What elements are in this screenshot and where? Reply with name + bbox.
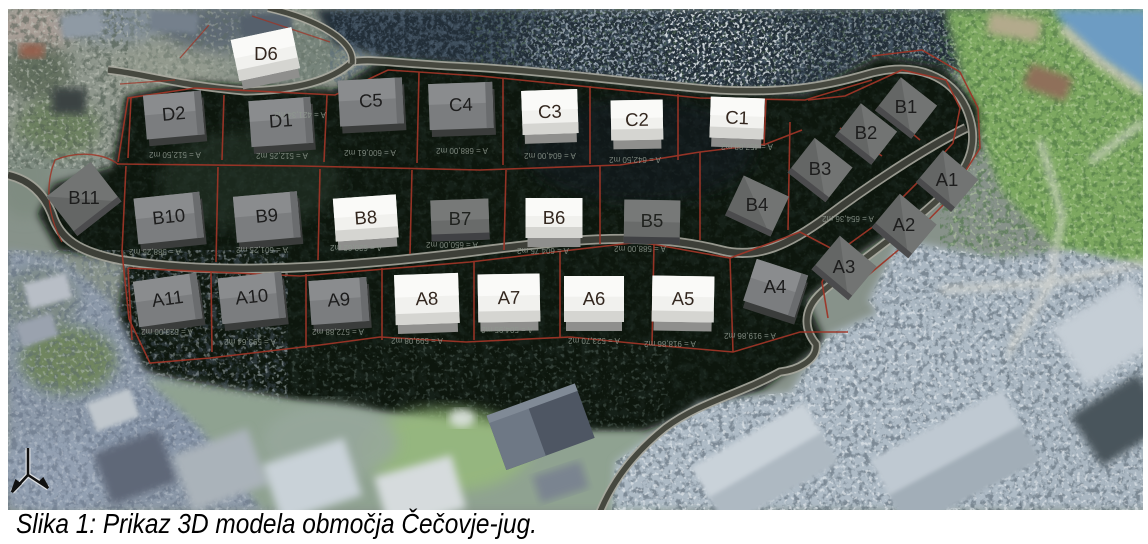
- svg-text:A = 588,25 m2: A = 588,25 m2: [129, 247, 181, 256]
- svg-text:B11: B11: [68, 187, 100, 208]
- svg-text:A = 421,34 m2: A = 421,34 m2: [274, 110, 326, 119]
- svg-text:A = 642,50 m2: A = 642,50 m2: [609, 155, 661, 164]
- svg-text:A9: A9: [327, 288, 351, 311]
- svg-text:A = 523,70 m2: A = 523,70 m2: [568, 336, 620, 345]
- svg-text:A4: A4: [764, 276, 787, 297]
- svg-text:A = 572,88 m2: A = 572,88 m2: [312, 327, 364, 336]
- svg-text:A = 688,00 m2: A = 688,00 m2: [436, 146, 488, 155]
- svg-text:C3: C3: [538, 100, 562, 122]
- svg-text:A11: A11: [150, 286, 184, 311]
- svg-text:C2: C2: [625, 109, 649, 130]
- svg-text:B10: B10: [151, 204, 186, 228]
- svg-text:A8: A8: [415, 288, 438, 310]
- svg-text:B2: B2: [855, 122, 878, 143]
- svg-text:B3: B3: [809, 158, 832, 179]
- svg-text:Slika 1: Prikaz 3D modela obmo: Slika 1: Prikaz 3D modela območja Čečovj…: [16, 508, 537, 539]
- svg-text:A5: A5: [672, 288, 695, 309]
- svg-text:A = 918,86 m2: A = 918,86 m2: [644, 339, 696, 348]
- svg-text:B5: B5: [641, 210, 664, 231]
- svg-text:A10: A10: [234, 284, 269, 308]
- svg-text:A = 523,00 m2: A = 523,00 m2: [141, 327, 193, 336]
- svg-text:A = 654,36 m2: A = 654,36 m2: [822, 214, 874, 223]
- svg-text:A = 600,61 m2: A = 600,61 m2: [344, 148, 396, 157]
- svg-text:A = 620,62 m2: A = 620,62 m2: [330, 243, 382, 252]
- svg-text:C4: C4: [449, 93, 473, 115]
- svg-text:B4: B4: [746, 194, 769, 215]
- svg-text:A = 919,86 m2: A = 919,86 m2: [724, 331, 776, 340]
- svg-text:A = 604,75 m2: A = 604,75 m2: [517, 246, 569, 255]
- svg-text:A = 599,08 m2: A = 599,08 m2: [391, 336, 443, 345]
- svg-text:B8: B8: [354, 206, 378, 229]
- svg-text:B6: B6: [543, 207, 566, 228]
- svg-text:B1: B1: [895, 96, 918, 117]
- svg-text:A = 512,25 m2: A = 512,25 m2: [256, 151, 308, 160]
- svg-text:A = 512,50 m2: A = 512,50 m2: [149, 150, 201, 159]
- svg-text:A6: A6: [583, 288, 606, 309]
- svg-text:A = 504,95 m2: A = 504,95 m2: [481, 325, 533, 334]
- svg-text:B9: B9: [254, 204, 278, 227]
- svg-text:C1: C1: [725, 106, 749, 128]
- svg-text:A7: A7: [497, 287, 520, 308]
- svg-text:C5: C5: [358, 89, 383, 111]
- svg-text:A2: A2: [893, 214, 916, 235]
- svg-text:D6: D6: [254, 43, 278, 64]
- svg-text:D2: D2: [161, 102, 186, 125]
- svg-text:A = 601,25 m2: A = 601,25 m2: [236, 245, 288, 254]
- svg-text:A3: A3: [833, 256, 856, 277]
- svg-text:A = 650,00 m2: A = 650,00 m2: [426, 240, 478, 249]
- svg-text:B7: B7: [449, 208, 472, 229]
- svg-text:A = 588,00 m2: A = 588,00 m2: [614, 244, 666, 253]
- svg-text:A = 457,88 m2: A = 457,88 m2: [721, 142, 773, 151]
- svg-text:A = 593,64 m2: A = 593,64 m2: [224, 337, 276, 346]
- svg-text:A1: A1: [936, 169, 959, 190]
- svg-text:A = 604,00 m2: A = 604,00 m2: [524, 151, 576, 160]
